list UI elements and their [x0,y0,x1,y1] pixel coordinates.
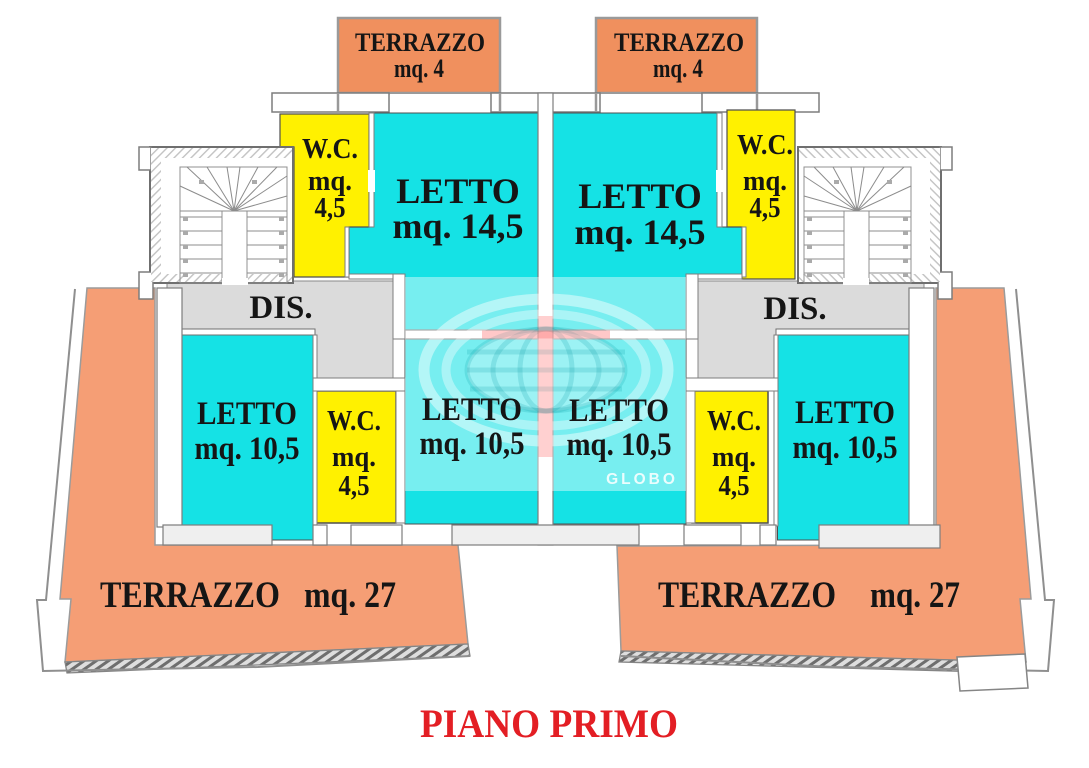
svg-text:W.C.: W.C. [737,130,793,161]
svg-text:TERRAZZO: TERRAZZO [658,575,836,616]
svg-text:TERRAZZO: TERRAZZO [614,28,744,57]
svg-text:LETTO: LETTO [197,396,297,432]
svg-text:mq. 4: mq. 4 [653,54,703,83]
svg-text:GLOBO: GLOBO [606,471,678,488]
svg-text:W.C.: W.C. [302,134,358,165]
svg-text:W.C.: W.C. [707,406,761,437]
svg-text:4,5: 4,5 [750,193,781,224]
svg-text:mq. 27: mq. 27 [304,575,396,616]
svg-text:4,5: 4,5 [719,471,750,502]
svg-text:mq. 4: mq. 4 [394,54,444,83]
svg-text:LETTO: LETTO [569,393,669,429]
svg-text:LETTO: LETTO [422,392,522,428]
svg-text:mq.: mq. [332,442,376,473]
svg-text:mq. 27: mq. 27 [870,575,960,616]
svg-text:DIS.: DIS. [763,291,826,327]
svg-text:4,5: 4,5 [315,193,346,224]
svg-text:DIS.: DIS. [249,290,312,326]
svg-text:4,5: 4,5 [339,471,370,502]
svg-text:PIANO PRIMO: PIANO PRIMO [420,701,678,746]
svg-text:mq. 14,5: mq. 14,5 [392,206,523,246]
svg-text:W.C.: W.C. [327,406,381,437]
svg-text:LETTO: LETTO [578,176,701,216]
svg-text:mq. 10,5: mq. 10,5 [195,431,300,467]
svg-text:mq. 10,5: mq. 10,5 [420,426,525,462]
svg-text:TERRAZZO: TERRAZZO [355,28,485,57]
svg-text:TERRAZZO: TERRAZZO [100,575,280,616]
svg-text:mq. 10,5: mq. 10,5 [567,427,672,463]
svg-text:mq.: mq. [712,442,756,473]
svg-text:LETTO: LETTO [795,395,895,431]
svg-text:LETTO: LETTO [396,171,519,211]
svg-text:mq. 14,5: mq. 14,5 [574,212,705,252]
svg-text:mq. 10,5: mq. 10,5 [793,430,898,466]
